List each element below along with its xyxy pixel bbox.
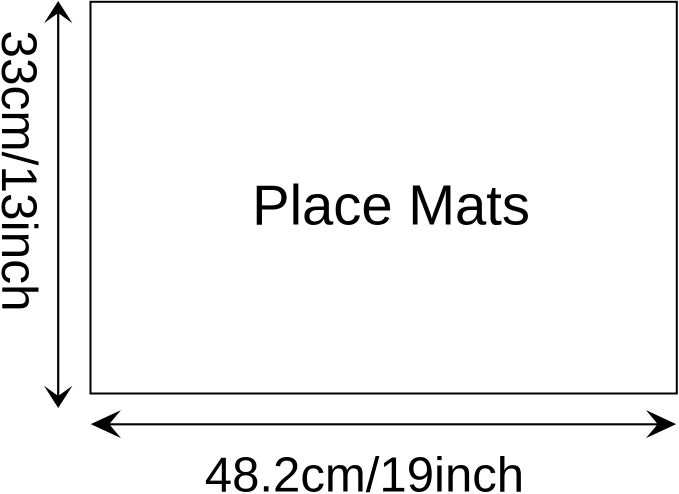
svg-text:33cm/13inch: 33cm/13inch	[0, 30, 47, 311]
svg-text:Place Mats: Place Mats	[252, 174, 530, 237]
svg-text:48.2cm/19inch: 48.2cm/19inch	[205, 449, 524, 494]
